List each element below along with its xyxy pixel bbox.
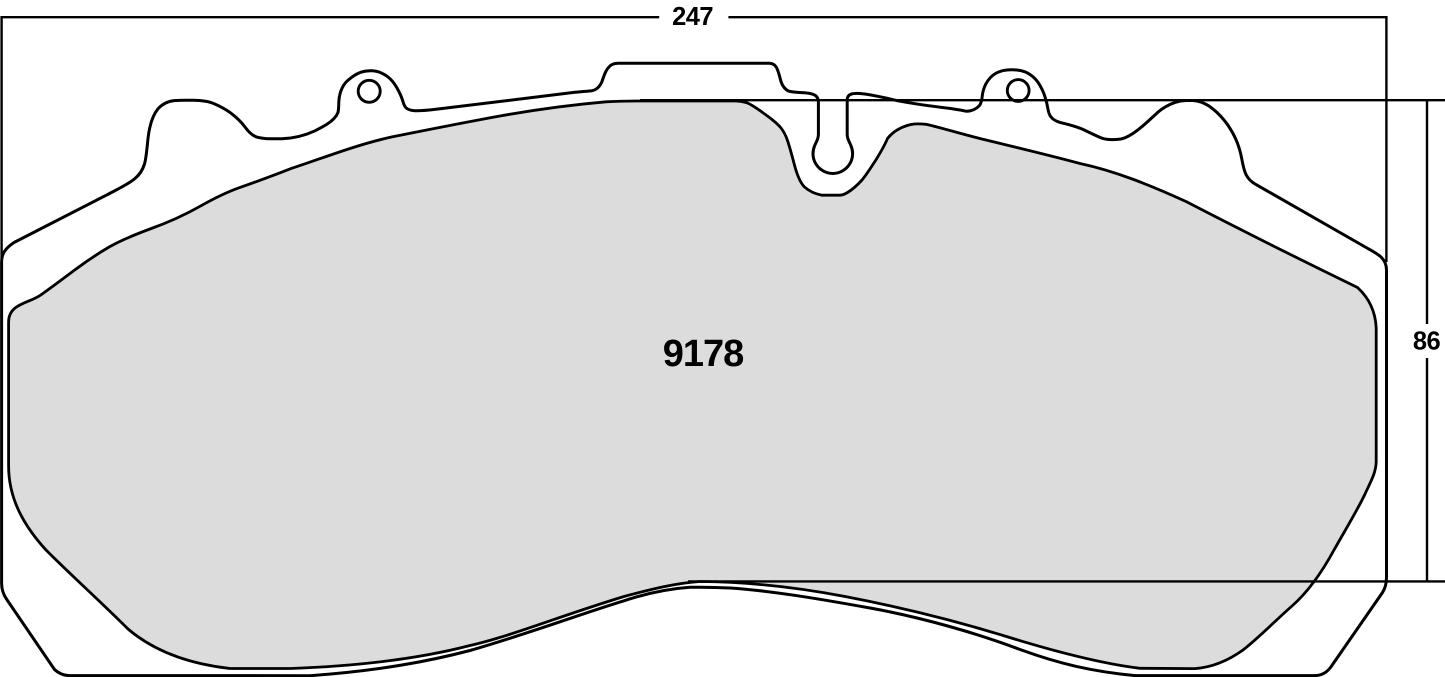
- svg-text:9178: 9178: [663, 333, 744, 375]
- svg-text:86: 86: [1413, 328, 1441, 356]
- svg-text:247: 247: [672, 3, 713, 31]
